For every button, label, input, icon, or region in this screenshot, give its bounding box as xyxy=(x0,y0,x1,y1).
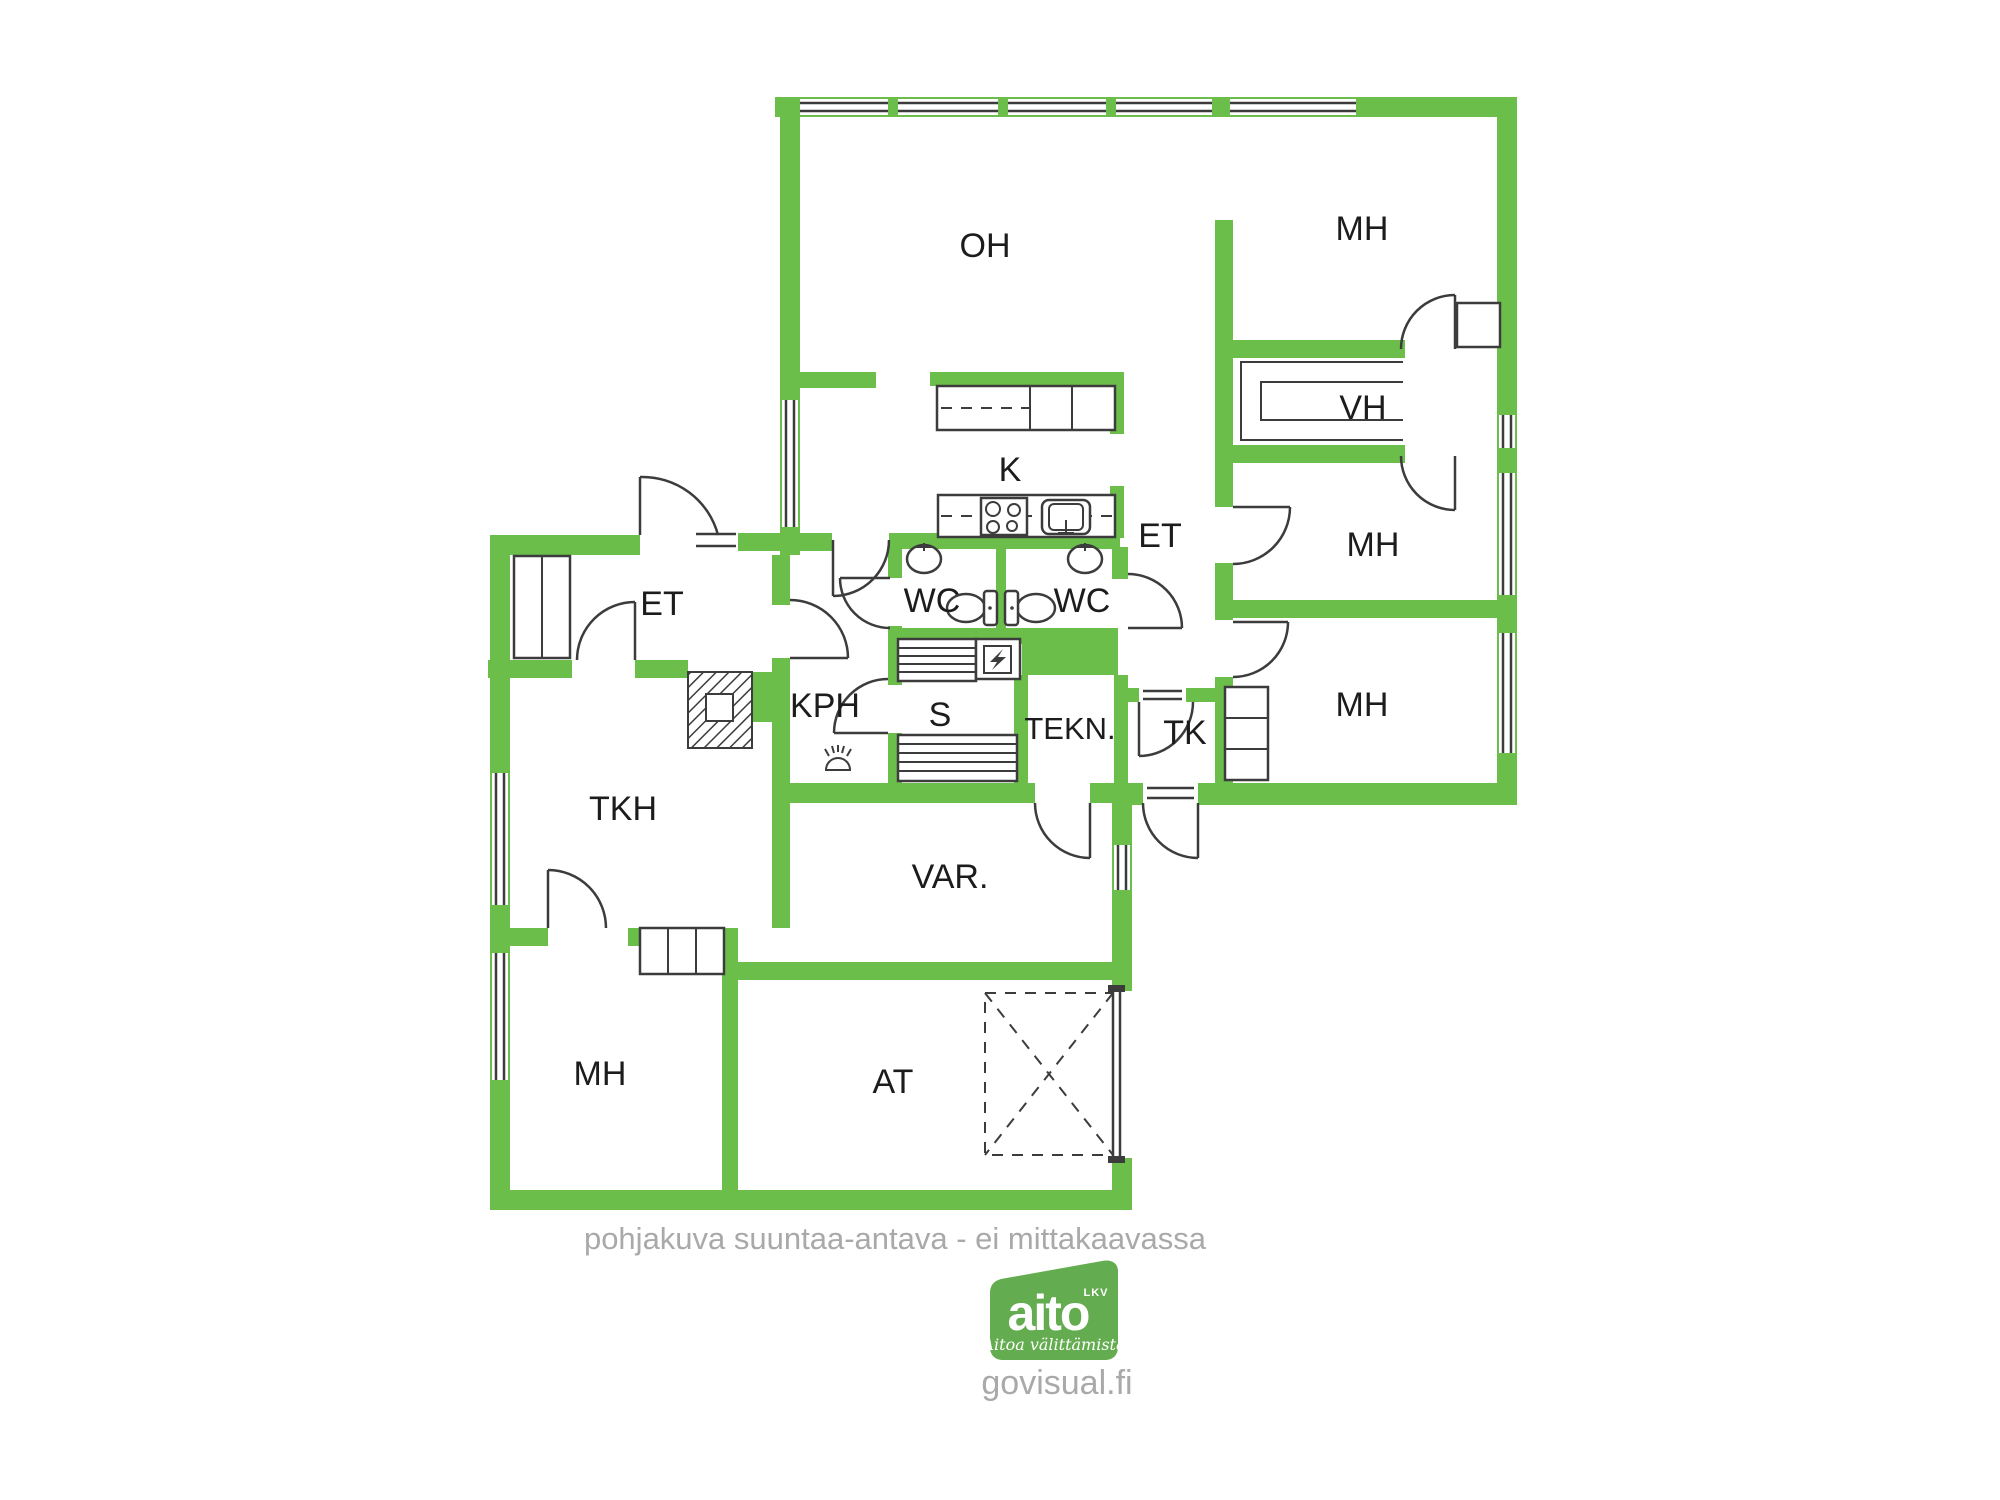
window xyxy=(1499,473,1515,595)
door xyxy=(548,870,606,928)
threshold xyxy=(1141,686,1184,704)
room-label-k: K xyxy=(999,451,1022,489)
window xyxy=(1499,633,1515,753)
closet xyxy=(1457,303,1500,347)
sauna-bench xyxy=(898,735,1017,781)
room-label-mh-bl: MH xyxy=(574,1055,627,1093)
room-label-tk: TK xyxy=(1163,714,1207,752)
window xyxy=(1114,845,1130,890)
footer: pohjakuva suuntaa-antava - ei mittakaava… xyxy=(584,1221,1207,1402)
door xyxy=(1233,507,1290,564)
wardrobe xyxy=(640,928,724,974)
door xyxy=(1401,295,1455,349)
window xyxy=(782,400,798,527)
door xyxy=(1035,803,1090,858)
door xyxy=(1401,456,1455,510)
room-label-oh: OH xyxy=(960,227,1011,265)
window xyxy=(800,99,888,115)
window xyxy=(898,99,998,115)
electrical-panel xyxy=(976,639,1020,679)
logo-brand-text: aito xyxy=(1008,1285,1089,1341)
wardrobe xyxy=(1225,687,1268,780)
window xyxy=(1499,415,1515,448)
toilet xyxy=(1005,591,1055,625)
fixtures-layer xyxy=(514,303,1500,1163)
floor-plan-svg: OH MH VH MH ET MH TK TEKN. S KPH K WC WC… xyxy=(0,0,2000,1500)
room-label-wc-right: WC xyxy=(1054,582,1111,620)
window xyxy=(1116,99,1212,115)
logo-tagline-text: Aitoa välittämistä xyxy=(980,1335,1125,1354)
door-entrance xyxy=(640,477,718,535)
room-label-kph: KPH xyxy=(790,687,860,725)
room-label-s: S xyxy=(929,696,952,734)
room-label-et-left: ET xyxy=(640,585,683,623)
room-label-vh: VH xyxy=(1339,389,1386,427)
room-label-wc-left: WC xyxy=(904,582,961,620)
garage-door xyxy=(1108,985,1125,1163)
window xyxy=(1008,99,1106,115)
disclaimer-text: pohjakuva suuntaa-antava - ei mittakaava… xyxy=(584,1221,1207,1256)
floor-plan-page: OH MH VH MH ET MH TK TEKN. S KPH K WC WC… xyxy=(0,0,2000,1500)
window xyxy=(492,953,508,1080)
room-label-mh-top: MH xyxy=(1336,210,1389,248)
room-label-var: VAR. xyxy=(912,858,989,896)
room-label-tkh: TKH xyxy=(589,790,657,828)
garage-marking xyxy=(985,993,1113,1155)
kitchen-island xyxy=(937,386,1115,430)
aito-logo: aito LKV Aitoa välittämistä xyxy=(980,1260,1125,1360)
sauna-bench xyxy=(898,639,976,681)
door xyxy=(1233,622,1288,677)
threshold xyxy=(1145,781,1196,805)
wc-sink xyxy=(907,543,941,573)
room-label-mh-mid: MH xyxy=(1347,526,1400,564)
room-label-mh-low: MH xyxy=(1336,686,1389,724)
shower-icon xyxy=(825,745,851,770)
room-label-at: AT xyxy=(873,1063,914,1101)
window xyxy=(492,773,508,905)
closet xyxy=(514,556,570,658)
website-text: govisual.fi xyxy=(981,1364,1132,1402)
door xyxy=(577,602,635,660)
door xyxy=(1143,803,1198,858)
door xyxy=(1128,574,1182,628)
fireplace xyxy=(688,672,752,748)
window xyxy=(1230,99,1356,115)
door xyxy=(790,600,848,658)
logo-lkv-text: LKV xyxy=(1084,1287,1109,1299)
wc-sink xyxy=(1068,543,1102,573)
room-label-et-right: ET xyxy=(1138,517,1181,555)
kitchen-counter xyxy=(938,495,1115,537)
room-label-tekn: TEKN. xyxy=(1024,711,1115,746)
